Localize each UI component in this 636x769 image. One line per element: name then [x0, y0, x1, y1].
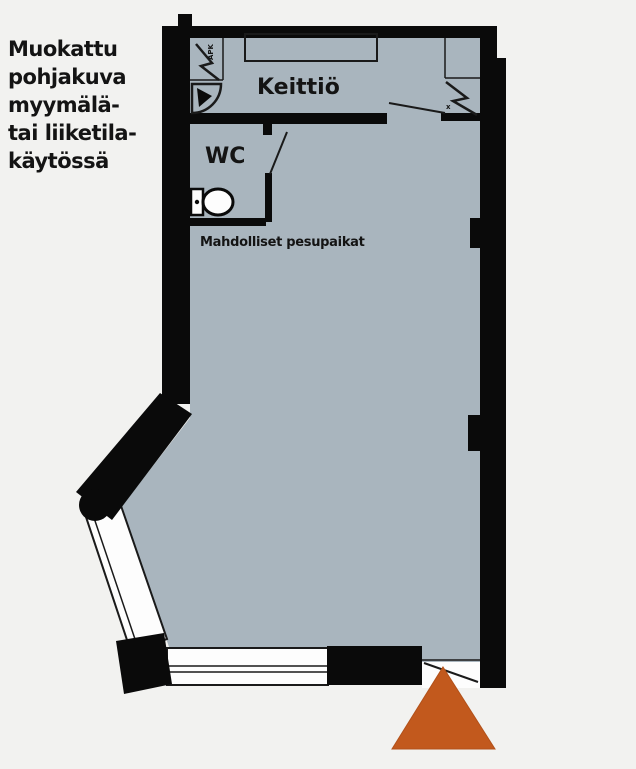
- title-line-2: pohjakuva: [8, 65, 126, 89]
- wc-right-wall: [265, 173, 272, 222]
- diagonal-wall-cap: [79, 489, 111, 521]
- closet-mark-label: x: [446, 103, 451, 111]
- right-wall-notch-lower: [468, 415, 482, 451]
- title-line-1: Muokattu: [8, 37, 117, 61]
- title-line-3: myymälä-: [8, 93, 119, 117]
- kitchen-divider-stub: [263, 124, 272, 135]
- washing-spots-label: Mahdolliset pesupaikat: [200, 235, 365, 250]
- bottom-wall-segment: [327, 646, 422, 685]
- right-wall: [480, 58, 506, 688]
- left-wall: [162, 26, 190, 404]
- title-line-4: tai liiketila-: [8, 121, 136, 145]
- floor-plan-page: Muokattu pohjakuva myymälä- tai liiketil…: [0, 0, 636, 769]
- kitchen-label: Keittiö: [257, 75, 340, 100]
- toilet-icon: [191, 189, 233, 215]
- appliance-label: APK: [207, 43, 215, 60]
- floor-plan-canvas: Muokattu pohjakuva myymälä- tai liiketil…: [0, 0, 636, 769]
- right-wall-notch-upper: [470, 218, 482, 248]
- kitchen-divider-wall: [190, 113, 387, 124]
- right-wall-upper: [480, 26, 497, 60]
- bottom-left-pillar: [116, 633, 172, 694]
- wc-bottom-wall: [186, 218, 266, 226]
- top-wall: [162, 26, 497, 38]
- top-wall-tab: [178, 14, 192, 28]
- title-line-5: käytössä: [8, 149, 109, 173]
- wc-label: WC: [205, 144, 245, 169]
